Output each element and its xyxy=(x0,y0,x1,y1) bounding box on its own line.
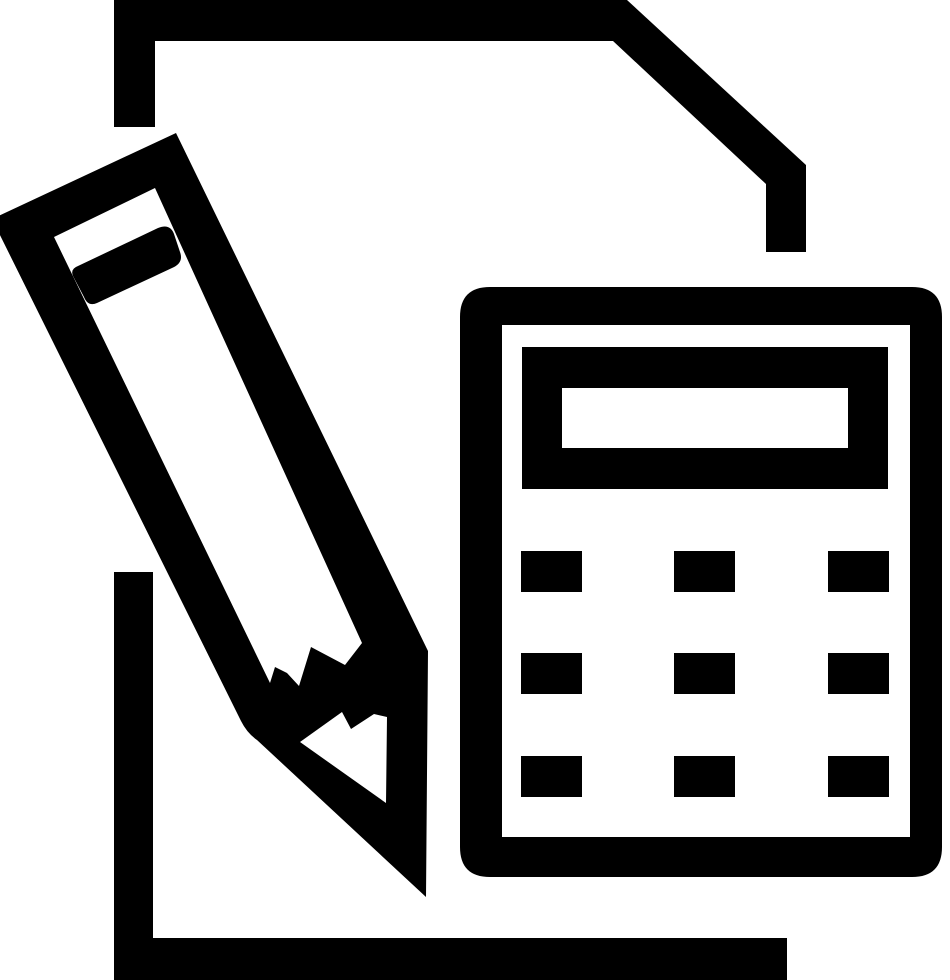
icon-canvas xyxy=(0,0,950,980)
pencil-eraser-band-icon xyxy=(72,226,181,304)
calculator-display-icon xyxy=(522,347,888,489)
document-top-outline-icon xyxy=(114,0,806,252)
pencil-icon xyxy=(0,133,428,897)
document-pencil-calculator-icon xyxy=(0,0,950,980)
calculator-keypad-icon xyxy=(521,551,889,797)
